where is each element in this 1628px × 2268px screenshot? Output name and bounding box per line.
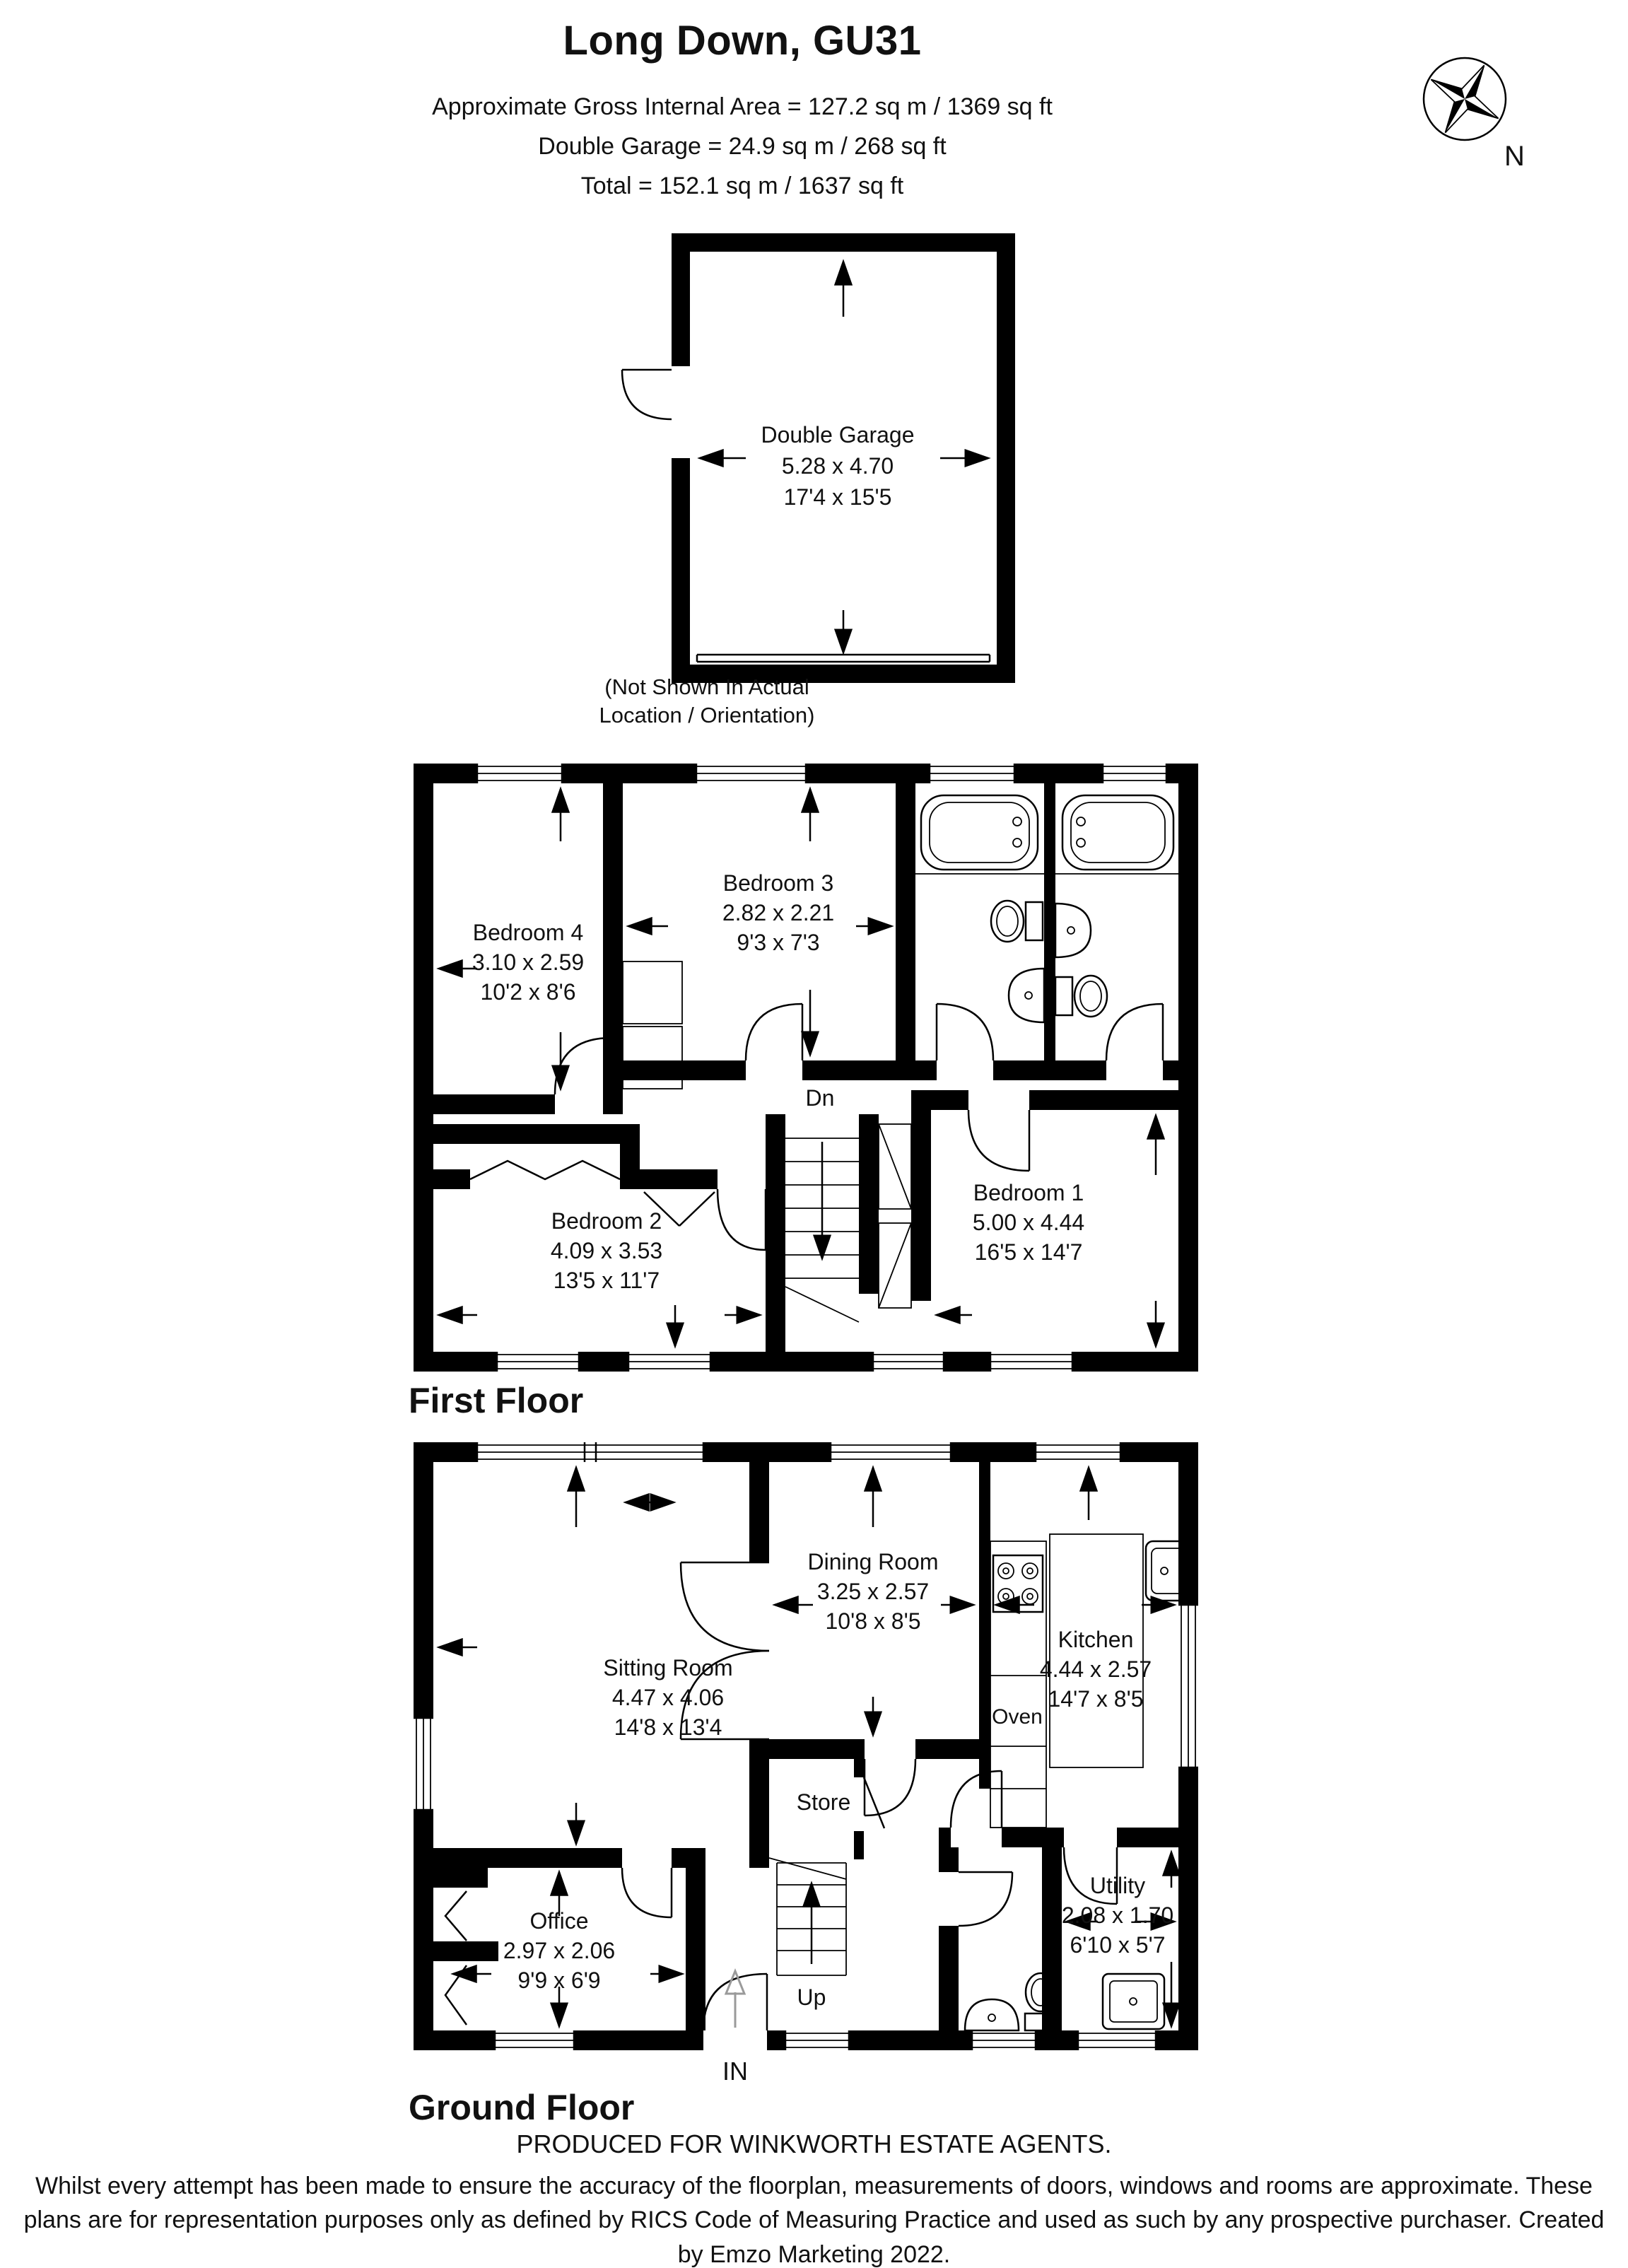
page-title: Long Down, GU31	[0, 17, 1484, 64]
sitting-name: Sitting Room	[603, 1655, 732, 1680]
garage-imperial: 17'4 x 15'5	[784, 484, 892, 510]
gf-stairs-label: Up	[797, 1984, 826, 2010]
ff-sink-icon	[1009, 969, 1044, 1022]
ff-ensuite-toilet-icon	[1055, 976, 1107, 1017]
bedroom3-name: Bedroom 3	[723, 870, 834, 896]
ff-bedroom3-label: Bedroom 3 2.82 x 2.21 9'3 x 7'3	[722, 870, 834, 955]
dining-name: Dining Room	[808, 1549, 939, 1574]
garage-metric: 5.28 x 4.70	[782, 453, 894, 479]
garage-note: (Not Shown In Actual Location / Orientat…	[587, 673, 827, 730]
compass-north-label: N	[1504, 141, 1525, 172]
bedroom1-metric: 5.00 x 4.44	[973, 1210, 1084, 1235]
garage-vehicle-door	[697, 655, 990, 662]
ground-floor-label: Ground Floor	[409, 2087, 634, 2128]
ff-bath-icon	[915, 795, 1044, 874]
ff-bedroom2-label: Bedroom 2 4.09 x 3.53 13'5 x 11'7	[551, 1208, 662, 1293]
ff-toilet-icon	[991, 901, 1043, 942]
gross-area-line: Approximate Gross Internal Area = 127.2 …	[0, 93, 1484, 121]
gf-sitting-label: Sitting Room 4.47 x 4.06 14'8 x 13'4	[603, 1655, 732, 1740]
ff-ensuite-bath-icon	[1055, 795, 1178, 874]
gf-utility-sink-icon	[1103, 1974, 1164, 2029]
floorplan-page: Long Down, GU31 Approximate Gross Intern…	[0, 0, 1628, 2268]
utility-imperial: 6'10 x 5'7	[1070, 1932, 1166, 1958]
utility-name: Utility	[1090, 1873, 1145, 1898]
gf-utility-label: Utility 2.08 x 1.70 6'10 x 5'7	[1062, 1873, 1173, 1958]
ff-bedroom1-label: Bedroom 1 5.00 x 4.44 16'5 x 14'7	[973, 1180, 1084, 1265]
bedroom2-name: Bedroom 2	[551, 1208, 662, 1234]
garage-name: Double Garage	[761, 422, 914, 448]
dining-imperial: 10'8 x 8'5	[826, 1608, 921, 1634]
gf-store-label: Store	[797, 1789, 850, 1815]
bedroom4-imperial: 10'2 x 8'6	[481, 979, 576, 1005]
bedroom2-metric: 4.09 x 3.53	[551, 1238, 662, 1263]
utility-metric: 2.08 x 1.70	[1062, 1902, 1173, 1928]
gf-oven-label: Oven	[992, 1705, 1043, 1729]
bedroom3-metric: 2.82 x 2.21	[722, 900, 834, 925]
kitchen-metric: 4.44 x 2.57	[1040, 1656, 1152, 1682]
bedroom1-name: Bedroom 1	[973, 1180, 1084, 1205]
gf-dining-label: Dining Room 3.25 x 2.57 10'8 x 8'5	[808, 1549, 939, 1634]
bedroom2-imperial: 13'5 x 11'7	[554, 1268, 660, 1293]
first-floor-plan: Bedroom 4 3.10 x 2.59 10'2 x 8'6 Bedroom…	[406, 756, 1205, 1379]
compass-icon: N	[1407, 37, 1534, 178]
ff-bedroom4-label: Bedroom 4 3.10 x 2.59 10'2 x 8'6	[472, 920, 584, 1005]
gf-wc-sink-icon	[965, 1999, 1019, 2030]
garage-door	[622, 370, 672, 419]
first-floor-label: First Floor	[409, 1380, 583, 1421]
total-area-line: Total = 152.1 sq m / 1637 sq ft	[0, 173, 1484, 200]
garage-label: Double Garage 5.28 x 4.70 17'4 x 15'5	[761, 422, 914, 510]
disclaimer-text: Whilst every attempt has been made to en…	[21, 2169, 1607, 2268]
garage-area-line: Double Garage = 24.9 sq m / 268 sq ft	[0, 133, 1484, 160]
office-name: Office	[530, 1908, 589, 1934]
gf-kitchen-label: Kitchen 4.44 x 2.57 14'7 x 8'5	[1040, 1627, 1152, 1712]
ground-floor-plan: Sitting Room 4.47 x 4.06 14'8 x 13'4 Din…	[406, 1435, 1205, 2093]
ff-stairs-label: Dn	[806, 1085, 835, 1111]
dining-metric: 3.25 x 2.57	[817, 1579, 929, 1604]
sitting-metric: 4.47 x 4.06	[612, 1685, 724, 1710]
gf-stairs	[769, 1858, 846, 1975]
office-imperial: 9'9 x 6'9	[517, 1968, 600, 1993]
bedroom4-metric: 3.10 x 2.59	[472, 949, 584, 975]
bedroom3-imperial: 9'3 x 7'3	[737, 930, 819, 955]
kitchen-name: Kitchen	[1058, 1627, 1134, 1652]
garage-plan: Double Garage 5.28 x 4.70 17'4 x 15'5	[601, 225, 1025, 720]
gf-entrance-label: IN	[722, 2057, 748, 2086]
bedroom1-imperial: 16'5 x 14'7	[975, 1239, 1083, 1265]
sitting-imperial: 14'8 x 13'4	[614, 1714, 722, 1740]
gf-office-label: Office 2.97 x 2.06 9'9 x 6'9	[503, 1908, 615, 1993]
ff-ensuite-sink-icon	[1055, 904, 1091, 957]
ff-stairs	[785, 1138, 859, 1322]
bedroom4-name: Bedroom 4	[473, 920, 584, 945]
compass-star	[1431, 65, 1498, 132]
produced-for-line: PRODUCED FOR WINKWORTH ESTATE AGENTS.	[0, 2129, 1628, 2159]
office-metric: 2.97 x 2.06	[503, 1938, 615, 1963]
kitchen-imperial: 14'7 x 8'5	[1048, 1686, 1144, 1712]
gf-hob-icon	[993, 1555, 1043, 1612]
